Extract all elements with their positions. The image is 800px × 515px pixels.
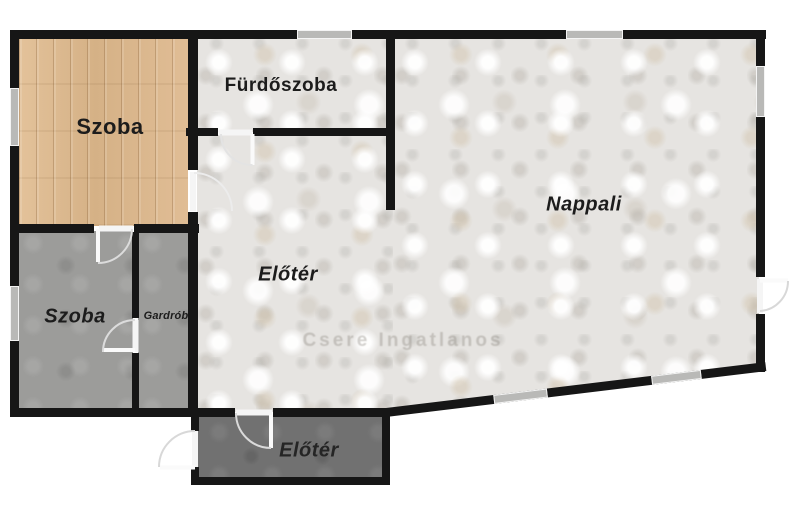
floorplan: Csere Ingatlanos Szoba Fürdőszoba Nappal…: [0, 0, 800, 515]
room-label-nappali: Nappali: [546, 194, 622, 217]
window: [10, 88, 19, 146]
wall-segment: [10, 30, 19, 88]
wall-segment: [10, 30, 297, 39]
wall-segment: [10, 341, 19, 417]
room-label-furdoszoba: Fürdőszoba: [225, 75, 338, 97]
window: [10, 286, 19, 341]
floor-nappali: [393, 38, 759, 414]
wall-segment: [352, 30, 566, 39]
wall-segment: [132, 232, 139, 318]
room-label-szoba-top: Szoba: [76, 114, 143, 140]
window: [566, 30, 623, 39]
room-label-szoba-bottom: Szoba: [44, 306, 105, 329]
wall-segment: [10, 146, 19, 286]
watermark-text: Csere Ingatlanos: [302, 330, 503, 352]
wall-segment: [386, 38, 395, 210]
wall-segment: [756, 117, 765, 277]
room-label-eloter-entry: Előtér: [279, 440, 339, 463]
room-label-gardrob: Gardrób: [144, 310, 189, 322]
wall-segment: [191, 408, 199, 431]
wall-segment: [623, 30, 766, 39]
wall-segment: [10, 224, 94, 233]
wall-segment: [382, 412, 390, 485]
door-front-entrance-arc: [159, 431, 195, 467]
wall-segment: [188, 38, 198, 170]
wall-segment: [253, 128, 395, 136]
door-nappali-right-arc: [760, 281, 788, 311]
wall-segment: [191, 467, 199, 485]
wall-segment: [10, 408, 235, 417]
room-label-eloter-hall: Előtér: [258, 264, 318, 287]
wall-segment: [273, 408, 390, 417]
window: [756, 66, 765, 117]
wall-segment: [132, 353, 139, 411]
wall-segment: [188, 212, 198, 412]
wall-segment: [756, 30, 765, 66]
window: [297, 30, 352, 39]
wall-segment: [193, 477, 390, 485]
